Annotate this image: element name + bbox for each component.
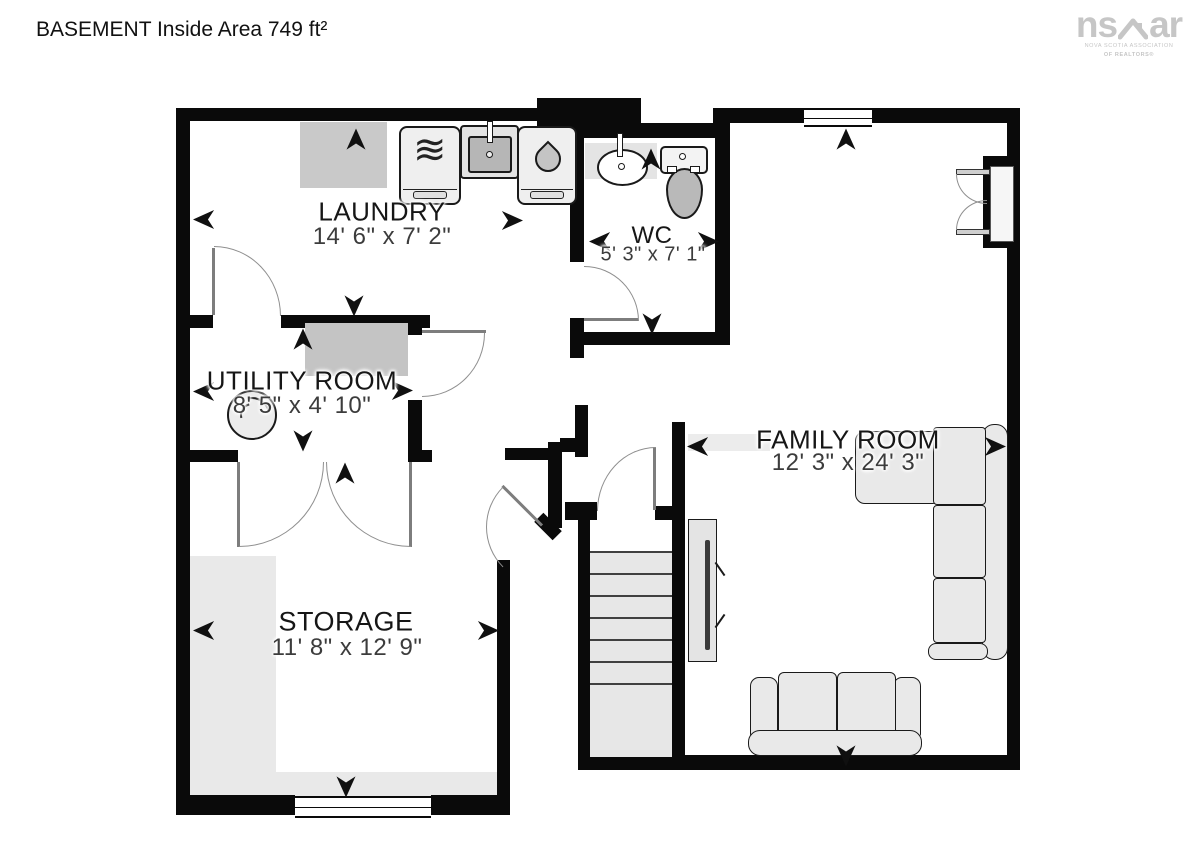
- wall-storage-bottom: [176, 795, 295, 815]
- toilet-tank-button: [679, 153, 686, 160]
- door-arc: [956, 200, 987, 230]
- wall-family-bottom: [578, 755, 1020, 770]
- direction-arrow: [477, 621, 499, 640]
- wall-wc-right: [715, 121, 730, 345]
- direction-arrow: [193, 210, 215, 229]
- wall-wc-bottom: [577, 332, 730, 345]
- dryer-drop-icon: [530, 141, 567, 178]
- sectional-sofa-cushion: [933, 578, 986, 643]
- door-arc: [422, 333, 485, 397]
- room-dims-storage: 11' 8" x 12' 9": [272, 634, 423, 662]
- room-dims-laundry: 14' 6" x 7' 2": [313, 223, 452, 251]
- door-arc: [214, 246, 281, 316]
- storage-unfinished-floor: [190, 556, 276, 796]
- door-arc: [486, 470, 600, 584]
- logo-caption-1: NOVA SCOTIA ASSOCIATION: [1074, 43, 1184, 49]
- window: [804, 108, 872, 127]
- window: [295, 796, 431, 818]
- tv-cabinet: [688, 519, 717, 662]
- appliance-pad: [300, 122, 387, 188]
- wall-utility-right: [408, 315, 422, 335]
- sink-drain: [618, 163, 625, 170]
- wall-stub: [560, 438, 575, 452]
- room-dims-family: 12' 3" x 24' 3": [772, 449, 924, 477]
- toilet-seat-hinge: [667, 166, 677, 173]
- door-arc: [597, 447, 656, 511]
- wall: [641, 123, 723, 138]
- wall-utility-storage: [176, 450, 238, 462]
- direction-arrow: [501, 211, 523, 230]
- wall: [872, 108, 1020, 123]
- wall-storage-right: [497, 560, 510, 815]
- direction-arrow: [345, 295, 364, 317]
- room-dims-utility: 8' 5" x 4' 10": [233, 392, 372, 420]
- direction-arrow: [294, 430, 313, 452]
- toilet-bowl: [666, 168, 703, 219]
- wall: [176, 108, 537, 121]
- room-label-storage: STORAGE: [278, 607, 413, 638]
- closet-door-panel: [990, 166, 1014, 242]
- loveseat-arm: [750, 677, 778, 737]
- stair-landing: [590, 683, 672, 757]
- wall-stair-left-top: [575, 405, 588, 457]
- logo-text-right: ar: [1149, 10, 1182, 40]
- logo-text-left: ns: [1076, 10, 1117, 40]
- door-arc: [326, 462, 411, 547]
- door-arc: [584, 266, 639, 321]
- sectional-sofa-arm: [928, 643, 988, 660]
- washer-wave-icon: ≋: [413, 140, 447, 160]
- loveseat-arm: [893, 677, 921, 737]
- wall-family-left: [672, 422, 685, 770]
- wall-tv-icon: [705, 540, 710, 650]
- floor-plan: BASEMENT Inside Area 749 ft² ns ar NOVA …: [0, 0, 1200, 868]
- toilet-seat-hinge: [690, 166, 700, 173]
- room-dims-wc: 5' 3" x 7' 1": [600, 244, 705, 267]
- logo-caption-2: OF REALTORS®: [1074, 52, 1184, 58]
- direction-arrow: [837, 129, 856, 151]
- dryer-icon: [517, 126, 577, 205]
- loveseat-base: [748, 730, 922, 756]
- wall-utility-storage: [410, 450, 432, 462]
- page-title: BASEMENT Inside Area 749 ft²: [36, 18, 327, 42]
- faucet: [617, 133, 623, 157]
- nsar-logo: ns ar NOVA SCOTIA ASSOCIATION OF REALTOR…: [1074, 10, 1184, 58]
- house-roof-icon: [1118, 16, 1148, 40]
- sectional-sofa-cushion: [933, 505, 986, 578]
- washer-icon: ≋: [399, 126, 461, 205]
- sectional-sofa-cushion: [933, 427, 986, 505]
- wall-laundry-utility: [176, 315, 213, 328]
- laundry-sink-icon: [460, 125, 519, 179]
- loveseat-cushion: [837, 672, 896, 736]
- loveseat-cushion: [778, 672, 837, 736]
- door-arc: [239, 462, 324, 547]
